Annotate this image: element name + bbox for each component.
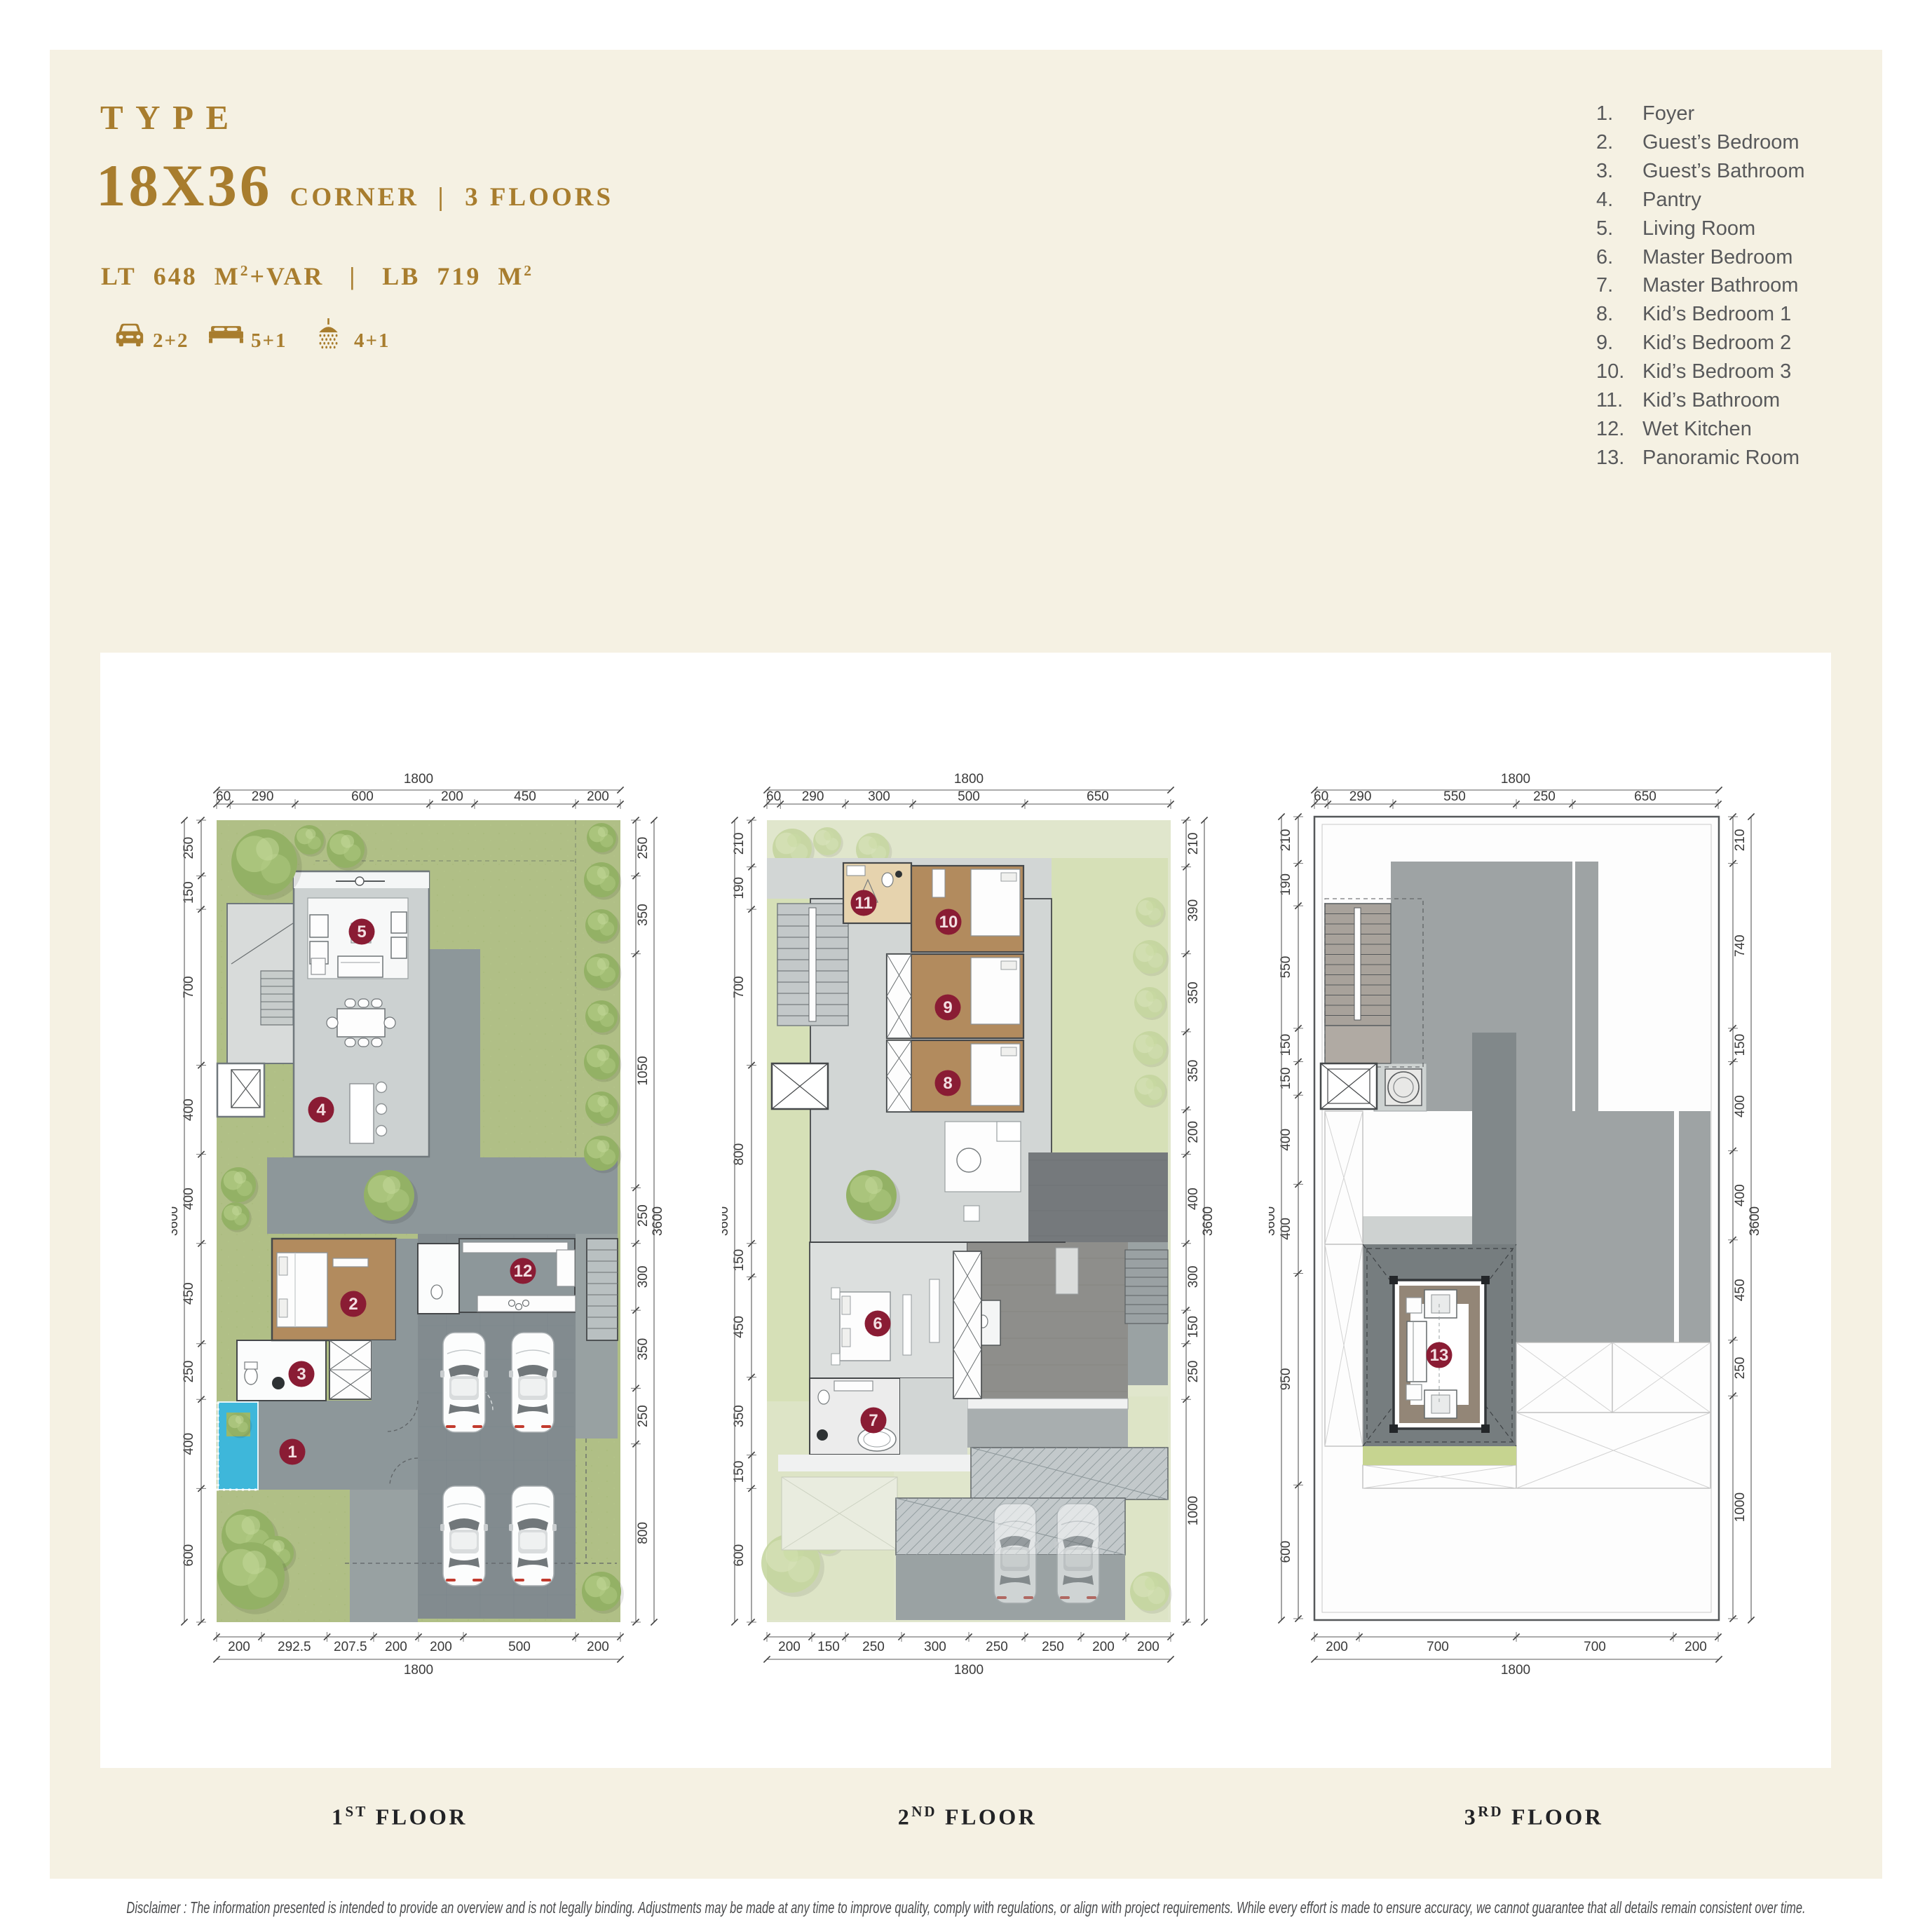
- svg-text:1000: 1000: [1186, 1496, 1201, 1525]
- svg-text:200: 200: [1685, 1640, 1707, 1654]
- svg-text:207.5: 207.5: [334, 1640, 367, 1654]
- svg-text:150: 150: [1279, 1034, 1293, 1056]
- svg-text:600: 600: [1279, 1541, 1293, 1563]
- svg-text:60: 60: [766, 789, 781, 804]
- svg-text:1800: 1800: [954, 772, 984, 787]
- svg-text:500: 500: [958, 789, 980, 804]
- svg-text:550: 550: [1279, 956, 1293, 979]
- svg-text:400: 400: [182, 1098, 196, 1121]
- svg-text:3600: 3600: [722, 1206, 731, 1236]
- svg-text:350: 350: [636, 904, 651, 926]
- svg-text:250: 250: [862, 1640, 885, 1654]
- svg-text:210: 210: [1186, 833, 1201, 855]
- svg-text:200: 200: [1186, 1121, 1201, 1143]
- svg-text:950: 950: [1279, 1368, 1293, 1391]
- svg-text:200: 200: [778, 1640, 801, 1654]
- svg-text:150: 150: [732, 1461, 747, 1483]
- svg-text:300: 300: [868, 789, 890, 804]
- svg-text:400: 400: [1279, 1218, 1293, 1240]
- svg-text:350: 350: [636, 1338, 651, 1361]
- svg-text:3600: 3600: [1748, 1206, 1762, 1236]
- svg-text:1800: 1800: [404, 1663, 433, 1678]
- svg-text:190: 190: [732, 877, 747, 899]
- svg-text:350: 350: [1186, 1060, 1201, 1082]
- svg-text:200: 200: [441, 789, 463, 804]
- svg-text:300: 300: [924, 1640, 946, 1654]
- svg-text:4: 4: [316, 1101, 326, 1120]
- svg-text:292.5: 292.5: [278, 1640, 311, 1654]
- svg-text:350: 350: [732, 1405, 747, 1427]
- svg-text:210: 210: [1733, 829, 1748, 852]
- svg-text:200: 200: [385, 1640, 407, 1654]
- svg-text:11: 11: [855, 894, 872, 913]
- svg-text:290: 290: [252, 789, 274, 804]
- svg-text:1800: 1800: [954, 1663, 984, 1678]
- svg-text:600: 600: [351, 789, 374, 804]
- svg-text:300: 300: [636, 1266, 651, 1288]
- svg-text:12: 12: [514, 1262, 533, 1281]
- svg-text:10: 10: [939, 913, 958, 932]
- svg-text:400: 400: [1279, 1129, 1293, 1151]
- svg-text:300: 300: [1186, 1266, 1201, 1288]
- svg-text:60: 60: [1314, 789, 1328, 804]
- svg-text:400: 400: [182, 1188, 196, 1210]
- svg-text:800: 800: [636, 1522, 651, 1544]
- svg-text:9: 9: [943, 998, 952, 1017]
- svg-text:190: 190: [1279, 873, 1293, 896]
- svg-text:200: 200: [228, 1640, 250, 1654]
- svg-text:250: 250: [1533, 789, 1556, 804]
- svg-text:1800: 1800: [1501, 1663, 1530, 1678]
- svg-text:150: 150: [732, 1249, 747, 1272]
- svg-text:210: 210: [1279, 829, 1293, 852]
- svg-text:700: 700: [1584, 1640, 1606, 1654]
- svg-text:450: 450: [732, 1316, 747, 1338]
- svg-text:400: 400: [1733, 1095, 1748, 1117]
- svg-text:400: 400: [182, 1433, 196, 1455]
- svg-text:5: 5: [357, 923, 366, 941]
- svg-text:6: 6: [873, 1314, 882, 1333]
- svg-text:8: 8: [943, 1074, 952, 1093]
- svg-text:1800: 1800: [1501, 772, 1530, 787]
- svg-text:250: 250: [1186, 1361, 1201, 1383]
- svg-text:250: 250: [1042, 1640, 1064, 1654]
- svg-text:3600: 3600: [1269, 1206, 1278, 1236]
- svg-text:350: 350: [1186, 981, 1201, 1004]
- svg-text:200: 200: [587, 1640, 609, 1654]
- svg-text:200: 200: [1092, 1640, 1115, 1654]
- svg-text:7: 7: [869, 1411, 878, 1430]
- svg-text:700: 700: [732, 976, 747, 998]
- svg-text:600: 600: [182, 1544, 196, 1567]
- svg-text:150: 150: [182, 881, 196, 904]
- svg-text:200: 200: [430, 1640, 452, 1654]
- svg-text:650: 650: [1634, 789, 1657, 804]
- svg-text:500: 500: [508, 1640, 531, 1654]
- svg-text:450: 450: [1733, 1279, 1748, 1301]
- svg-text:550: 550: [1443, 789, 1466, 804]
- svg-text:200: 200: [587, 789, 609, 804]
- svg-text:1000: 1000: [1733, 1492, 1748, 1522]
- svg-text:13: 13: [1430, 1346, 1449, 1365]
- svg-text:290: 290: [802, 789, 824, 804]
- svg-text:400: 400: [1186, 1188, 1201, 1210]
- svg-text:3600: 3600: [172, 1206, 181, 1236]
- svg-text:250: 250: [636, 837, 651, 859]
- svg-text:390: 390: [1186, 899, 1201, 922]
- svg-text:3600: 3600: [651, 1206, 665, 1236]
- svg-text:700: 700: [182, 976, 196, 998]
- svg-text:210: 210: [732, 833, 747, 855]
- svg-text:60: 60: [216, 789, 231, 804]
- svg-text:700: 700: [1427, 1640, 1449, 1654]
- svg-text:250: 250: [182, 1361, 196, 1383]
- svg-text:650: 650: [1087, 789, 1109, 804]
- svg-text:1: 1: [287, 1443, 297, 1462]
- svg-text:3: 3: [297, 1365, 306, 1384]
- svg-text:150: 150: [1279, 1068, 1293, 1090]
- svg-text:740: 740: [1733, 934, 1748, 957]
- svg-text:400: 400: [1733, 1184, 1748, 1206]
- svg-text:450: 450: [514, 789, 536, 804]
- svg-text:600: 600: [732, 1544, 747, 1567]
- svg-text:1050: 1050: [636, 1056, 651, 1085]
- svg-text:250: 250: [182, 837, 196, 859]
- svg-text:250: 250: [1733, 1357, 1748, 1380]
- svg-text:1800: 1800: [404, 772, 433, 787]
- svg-text:250: 250: [636, 1405, 651, 1427]
- svg-text:150: 150: [817, 1640, 840, 1654]
- svg-text:290: 290: [1349, 789, 1372, 804]
- svg-text:3600: 3600: [1201, 1206, 1216, 1236]
- svg-text:150: 150: [1733, 1034, 1748, 1056]
- svg-text:200: 200: [1326, 1640, 1348, 1654]
- svg-text:2: 2: [348, 1295, 358, 1314]
- svg-text:450: 450: [182, 1282, 196, 1305]
- svg-text:250: 250: [986, 1640, 1008, 1654]
- svg-text:200: 200: [1137, 1640, 1159, 1654]
- svg-text:150: 150: [1186, 1316, 1201, 1338]
- svg-text:800: 800: [732, 1143, 747, 1166]
- svg-text:250: 250: [636, 1204, 651, 1227]
